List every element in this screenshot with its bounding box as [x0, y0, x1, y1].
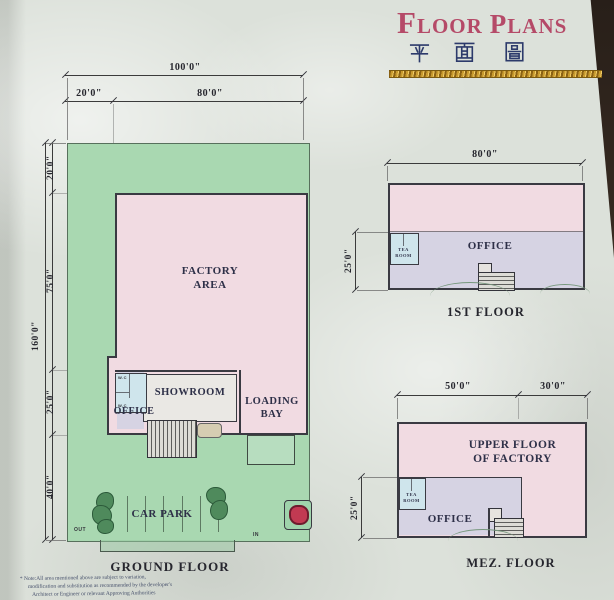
- cjk-char-ping-icon: [408, 40, 431, 63]
- title-part: P: [490, 9, 508, 39]
- gold-divider: [389, 70, 602, 78]
- tree-icon: [97, 519, 114, 534]
- cjk-char-tu-icon: [503, 40, 526, 63]
- title-part: LOOR: [417, 14, 483, 38]
- gf-dim-top-right: 80'0": [170, 88, 250, 99]
- gf-stairs: [147, 420, 197, 458]
- mz-dim-top-right: 30'0": [518, 381, 588, 392]
- carpark-stall-line: [200, 496, 201, 532]
- mz-dim-top-left: 50'0": [423, 381, 493, 392]
- gf-dim-left-office: 25'0": [46, 382, 56, 422]
- dim-tick: [584, 391, 591, 398]
- ext-line: [67, 78, 68, 140]
- f1-dim-line-left: [355, 232, 356, 290]
- gf-wc-fixture: [129, 374, 130, 398]
- title-part: LANS: [507, 14, 567, 38]
- gf-factory-label: FACTORY AREA: [170, 265, 250, 293]
- disclaimer-note: * Note:All area mentioned above are subj…: [20, 573, 172, 599]
- ext-line: [46, 540, 66, 541]
- gf-office-label: OFFICE: [106, 406, 162, 419]
- disclaimer-line: Architect or Engineer or relevant Approv…: [32, 589, 172, 599]
- carpark-stall-line: [127, 496, 128, 532]
- gf-dim-left-factory: 75'0": [46, 256, 56, 306]
- gf-partition-wall: [115, 370, 237, 372]
- gf-dim-top-left: 20'0": [69, 88, 109, 99]
- gf-wc-fixture: [116, 392, 129, 393]
- f1-office-label: OFFICE: [455, 240, 525, 254]
- gf-dim-top-total: 100'0": [150, 62, 220, 73]
- f1-dim-top: 80'0": [450, 149, 520, 160]
- cjk-char-mian-icon: [453, 40, 476, 63]
- ext-line: [387, 166, 388, 181]
- mz-dim-line-left: [361, 477, 362, 538]
- gf-carpark-label: CAR PARK: [130, 508, 194, 522]
- dim-tick: [300, 71, 307, 78]
- ext-line: [582, 166, 583, 181]
- red-marker-icon: [289, 505, 309, 525]
- mz-tearoom-fixture: [411, 479, 412, 491]
- gf-out-label: OUT: [74, 527, 86, 533]
- gf-dim-line-top-split: [65, 101, 303, 102]
- f1-divider-wall: [390, 231, 583, 232]
- f1-tearoom-label: TEA ROOM: [390, 247, 417, 258]
- gf-dim-left-carpark: 40'0": [46, 467, 56, 507]
- f1-tearoom-fixture: [403, 234, 404, 246]
- mz-dim-left: 25'0": [350, 487, 360, 529]
- ext-line: [357, 232, 388, 233]
- tree-icon: [210, 500, 228, 520]
- f1-caption: 1ST FLOOR: [426, 305, 546, 320]
- ext-line: [363, 477, 397, 478]
- gf-driveway-apron: [100, 540, 235, 552]
- ext-line: [46, 143, 66, 144]
- gf-wc-label: W.C: [118, 375, 127, 380]
- gf-car-icon: [197, 423, 222, 438]
- mz-upper-factory-label: UPPER FLOOR OF FACTORY: [455, 438, 570, 467]
- gf-dim-left-total: 160'0": [31, 298, 41, 374]
- ext-line: [587, 398, 588, 419]
- mz-tearoom-label: TEA ROOM: [399, 492, 424, 503]
- f1-dim-line-top: [387, 163, 582, 164]
- f1-dim-left: 25'0": [344, 240, 354, 282]
- dim-tick: [579, 159, 586, 166]
- ext-line: [363, 538, 397, 539]
- gf-in-label: IN: [253, 532, 259, 538]
- mz-office-label: OFFICE: [415, 513, 485, 527]
- gf-dim-line-top-total: [65, 75, 303, 76]
- mz-dim-line-top: [397, 395, 587, 396]
- ext-line: [518, 398, 519, 419]
- gf-showroom-label: SHOWROOM: [150, 386, 230, 399]
- mz-caption: MEZ. FLOOR: [451, 556, 571, 571]
- gf-loading-apron: [247, 435, 295, 465]
- gf-loadingbay-label: LOADING BAY: [235, 395, 309, 421]
- ext-line: [397, 398, 398, 419]
- gf-dim-left-top: 20'0": [46, 146, 56, 190]
- title-part: F: [397, 5, 417, 40]
- ext-line: [357, 290, 388, 291]
- ext-line: [303, 78, 304, 140]
